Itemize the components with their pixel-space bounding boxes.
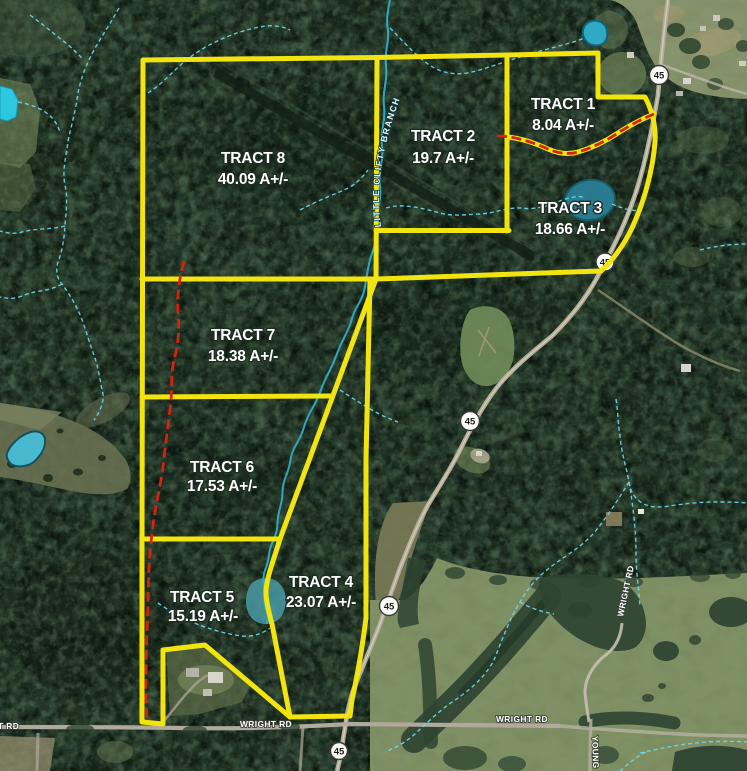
svg-text:YOUNG: YOUNG — [590, 736, 601, 769]
svg-text:15.19 A+/-: 15.19 A+/- — [168, 608, 238, 625]
svg-text:TRACT 8: TRACT 8 — [221, 150, 286, 167]
svg-text:TRACT 3: TRACT 3 — [538, 200, 603, 217]
svg-text:TRACT 6: TRACT 6 — [190, 459, 255, 476]
svg-text:18.38 A+/-: 18.38 A+/- — [208, 348, 278, 365]
svg-text:8.04 A+/-: 8.04 A+/- — [532, 117, 594, 134]
svg-text:18.66 A+/-: 18.66 A+/- — [535, 221, 605, 238]
svg-text:17.53 A+/-: 17.53 A+/- — [187, 478, 257, 495]
svg-text:45: 45 — [334, 747, 345, 758]
svg-text:TRACT 7: TRACT 7 — [211, 327, 275, 344]
svg-text:TRACT 4: TRACT 4 — [289, 574, 354, 591]
svg-text:23.07 A+/-: 23.07 A+/- — [286, 594, 356, 611]
svg-text:45: 45 — [654, 71, 665, 82]
svg-text:T RD: T RD — [0, 721, 19, 731]
svg-text:19.7 A+/-: 19.7 A+/- — [412, 150, 474, 167]
svg-text:TRACT 5: TRACT 5 — [170, 589, 235, 606]
svg-text:TRACT 2: TRACT 2 — [411, 128, 475, 145]
svg-text:45: 45 — [384, 602, 395, 613]
svg-text:40.09 A+/-: 40.09 A+/- — [218, 171, 288, 188]
svg-text:45: 45 — [465, 417, 476, 428]
svg-text:TRACT 1: TRACT 1 — [531, 96, 596, 113]
svg-text:WRIGHT RD: WRIGHT RD — [240, 719, 292, 729]
svg-text:WRIGHT RD: WRIGHT RD — [496, 714, 548, 724]
